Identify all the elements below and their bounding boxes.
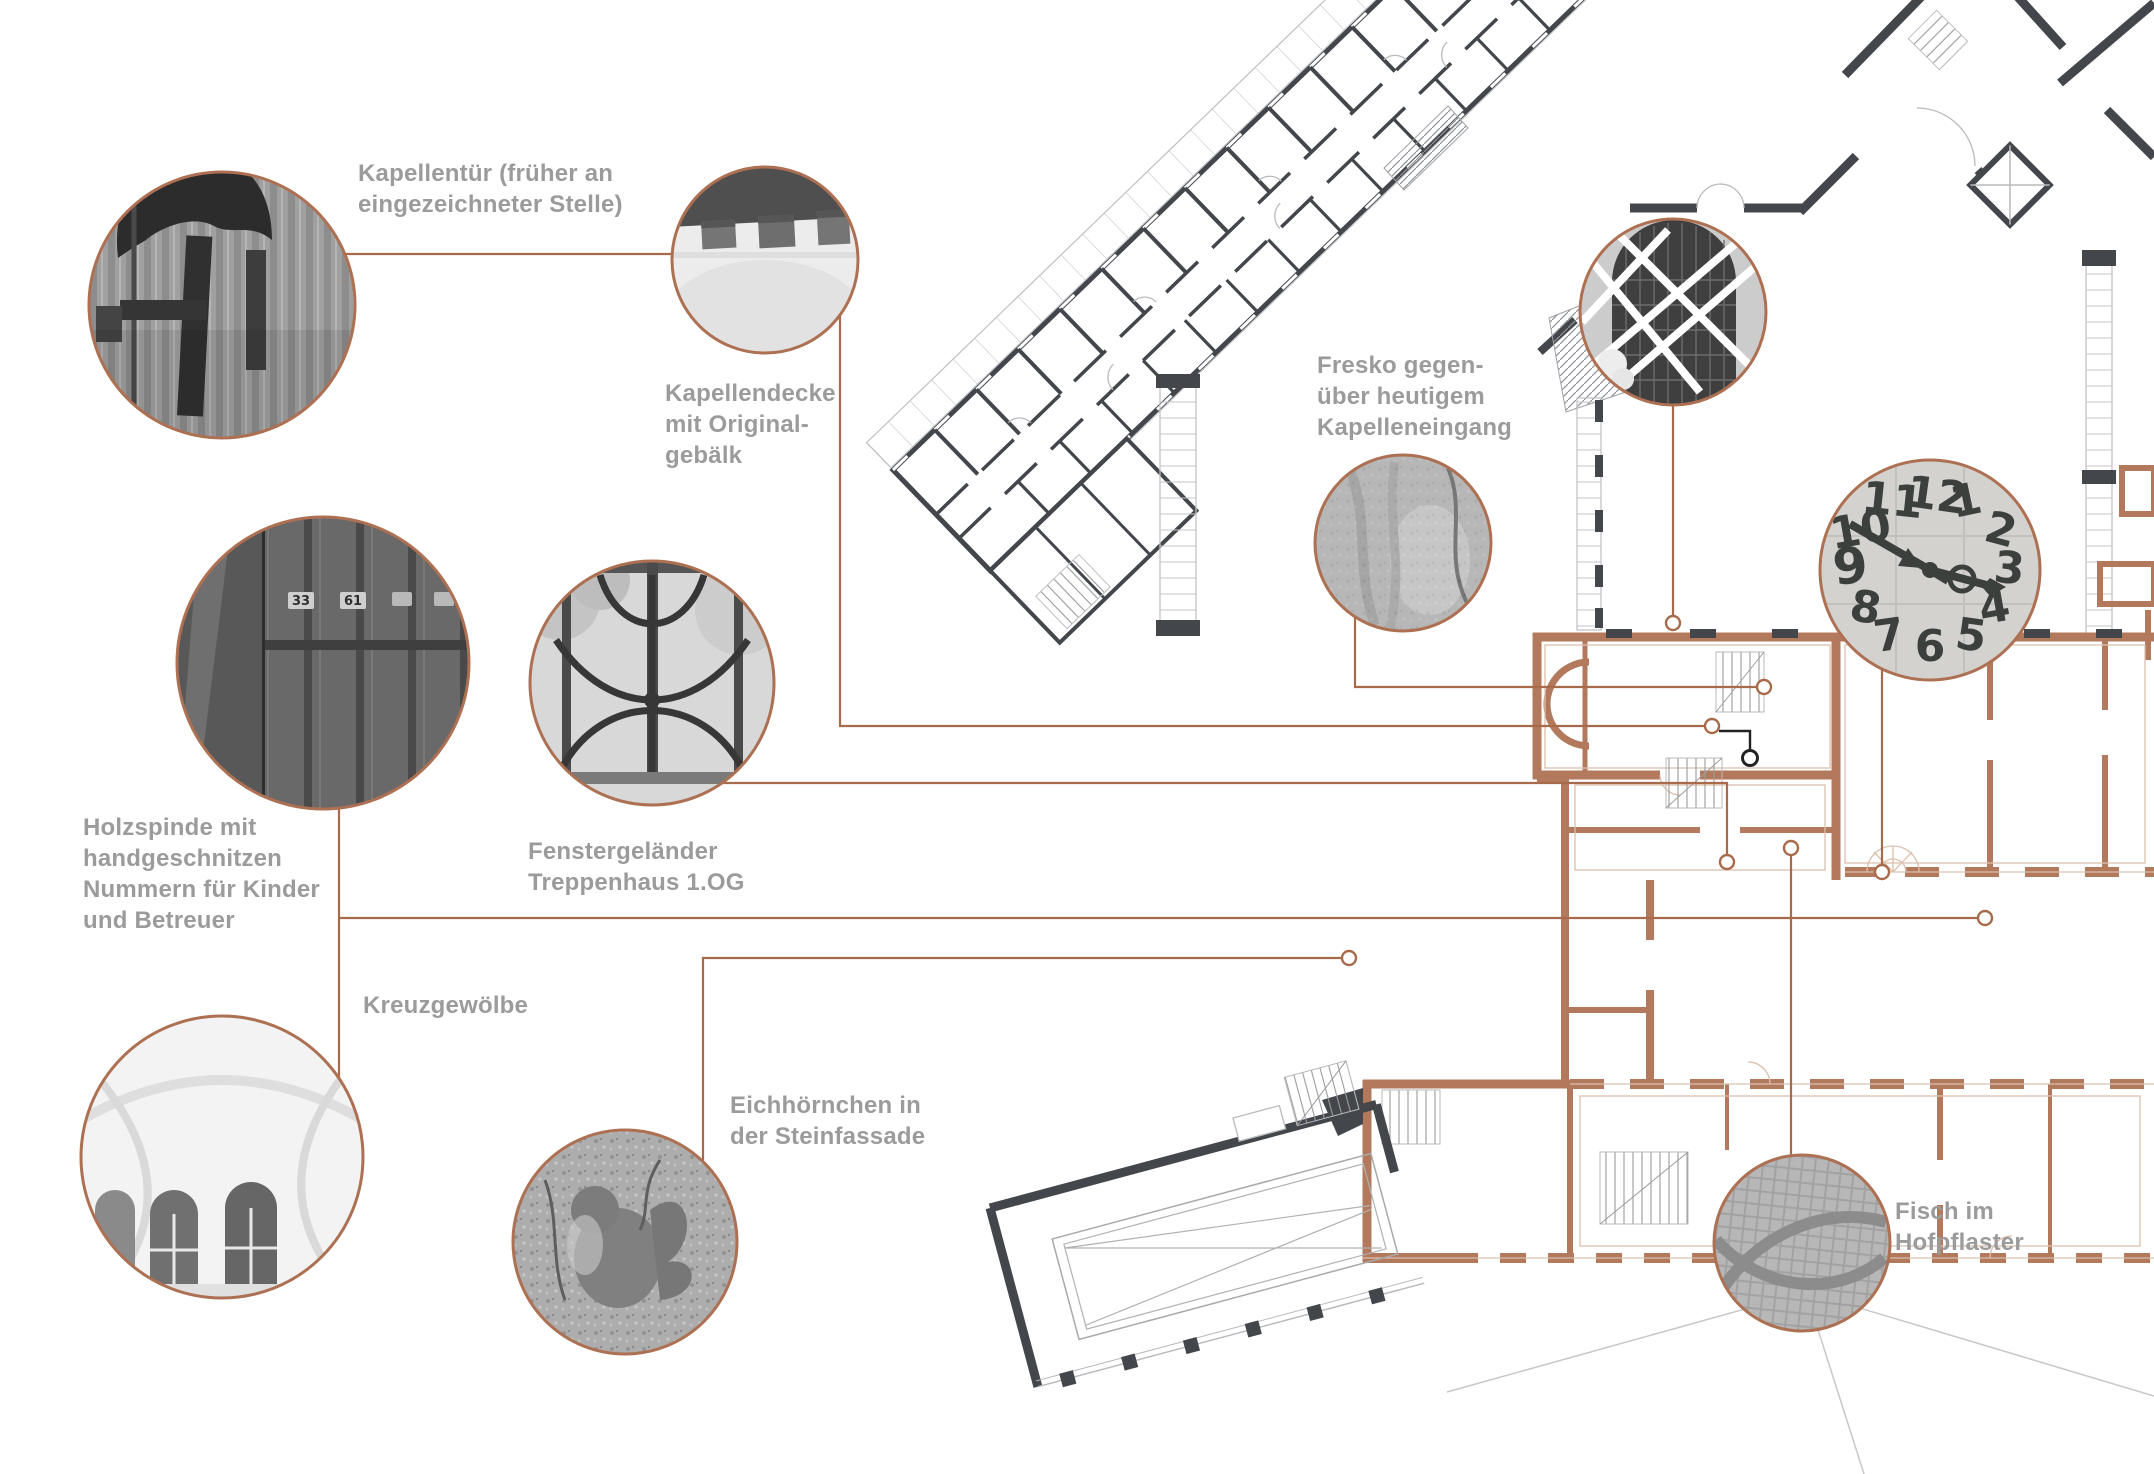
svg-text:12: 12 [1903, 466, 1971, 525]
leader-fenstergelaender [722, 783, 1727, 855]
label-kapellentuer: Kapellentür (früher an eingezeichneter S… [358, 158, 623, 220]
locker-number-plaque: 33 [292, 594, 310, 609]
elevator-shaft [1970, 145, 2049, 224]
locker-number-plaque: 61 [344, 594, 362, 609]
corner-stair [1908, 10, 1967, 69]
squirrel-stone-photo [513, 1130, 737, 1354]
label-fresko: Fresko gegen- über heutigem Kapelleneing… [1317, 350, 1512, 443]
verandah-chapel [1577, 398, 1603, 630]
former-door-marker [1719, 731, 1758, 766]
cross-vault-photo [81, 1016, 363, 1298]
wooden-lockers-photo: 33 61 [177, 517, 469, 809]
svg-text:6: 6 [1915, 621, 1946, 672]
label-fisch: Fisch im Hofpflaster [1895, 1196, 2024, 1258]
highlighted-building-plan [1322, 629, 2154, 1262]
chapel-entrance-photo [1580, 219, 1766, 405]
window-railing-photo [520, 550, 785, 805]
label-kreuzgewoelbe: Kreuzgewölbe [363, 990, 528, 1021]
label-holzspinde: Holzspinde mit handgeschnitzen Nummern f… [83, 812, 320, 936]
pool-hall-plan [977, 1056, 1426, 1393]
chapel-ceiling-photo [660, 155, 870, 380]
diagram-stage: 33 61 [0, 0, 2154, 1474]
verandah-west [1156, 374, 1200, 636]
floor-plan-svg: 33 61 [0, 0, 2154, 1474]
fresco-photo [1315, 455, 1491, 631]
chapel-door-photo [89, 156, 359, 440]
fish-mosaic-photo [1689, 1130, 1920, 1361]
stone-clock-photo: 1 2 3 4 5 6 7 8 9 10 11 12 [1820, 460, 2040, 680]
label-kapellendecke: Kapellendecke mit Original- gebälk [665, 378, 836, 471]
label-eichhoernchen: Eichhörnchen in der Steinfassade [730, 1090, 925, 1152]
label-fenstergelaender: Fenstergeländer Treppenhaus 1.OG [528, 836, 745, 898]
